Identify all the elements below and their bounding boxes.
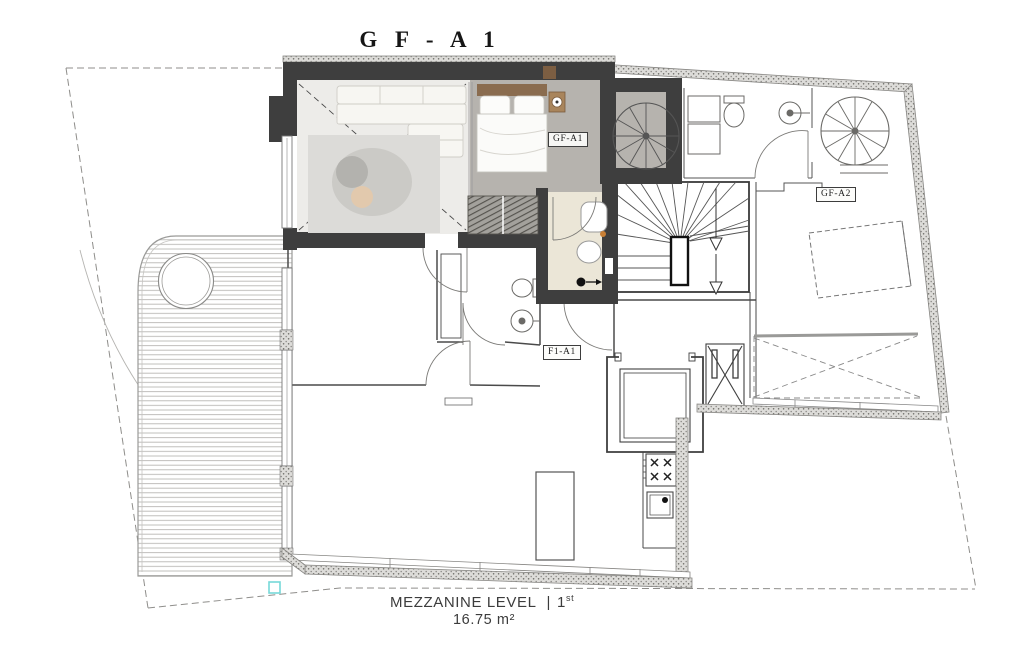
- planter-circle: [159, 254, 214, 309]
- gf-a2-bathroom-door: [755, 131, 808, 178]
- level-caption: MEZZANINE LEVEL|1st: [390, 593, 574, 611]
- level-name: MEZZANINE LEVEL: [390, 594, 537, 611]
- lower-unit-wc-fixtures: [511, 279, 540, 332]
- wall-column: [543, 66, 556, 79]
- gf-a1-spiral-stair: [613, 103, 679, 169]
- left-windows: [280, 268, 293, 560]
- floor-plan-page: G F - A 1 GF-A1 GF-A2 F1-A1 MEZZANINE LE…: [0, 0, 1024, 669]
- entry-marker: [269, 582, 280, 593]
- nightstand: [549, 92, 565, 112]
- stair-side-walls: [750, 182, 756, 398]
- kitchen: [643, 452, 676, 548]
- elevator-shaft: [607, 353, 703, 452]
- central-staircase: [616, 182, 749, 294]
- kitchen-island: [536, 472, 574, 560]
- terrace-deck: [138, 236, 292, 576]
- unit-label-gf-a1: GF-A1: [548, 132, 588, 147]
- wardrobe: [468, 196, 538, 234]
- gf-a2-spiral-stair: [821, 97, 889, 173]
- page-title: G F - A 1: [330, 27, 530, 53]
- unit-label-f1-a1: F1-A1: [543, 345, 581, 360]
- level-separator: |: [547, 594, 552, 611]
- gf-a2-bed-outline: [809, 221, 911, 298]
- rug: [308, 135, 440, 233]
- area-caption: 16.75 m²: [394, 612, 574, 628]
- gf-a2-bathroom: [688, 96, 810, 154]
- floor-number: 1: [557, 594, 566, 611]
- floor-plan-svg: [0, 0, 1024, 669]
- unit-label-gf-a2: GF-A2: [816, 187, 856, 202]
- hob-burners: [651, 459, 671, 480]
- service-duct: [706, 344, 744, 406]
- floor-suffix: st: [566, 593, 574, 603]
- wall-shelf: [445, 398, 472, 405]
- double-height-void: [754, 334, 922, 398]
